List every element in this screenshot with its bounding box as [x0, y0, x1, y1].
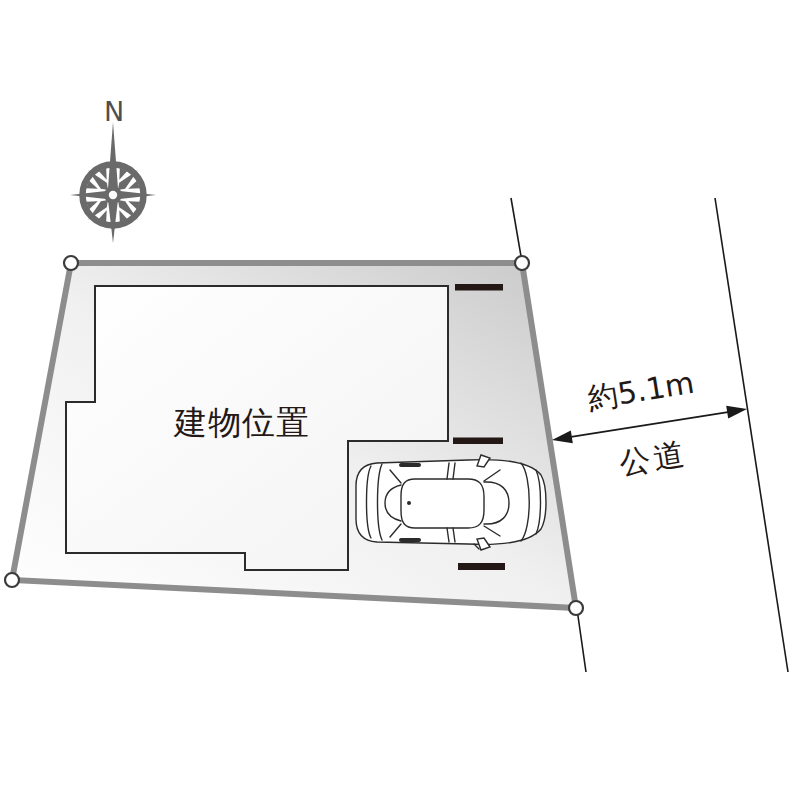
car-door-handle [407, 501, 411, 505]
corner-marker-top-left [64, 256, 78, 270]
corner-marker-bottom-right [569, 601, 583, 615]
road-left-edge-upper [511, 198, 522, 262]
compass-hub-center [109, 191, 117, 199]
setback-dash-bottom [458, 563, 505, 570]
dimension-arrowhead-left [552, 431, 573, 444]
road-width-label: 約5.1m [585, 365, 696, 416]
road-width-dimension [552, 406, 747, 444]
dimension-arrowhead-right [726, 406, 747, 419]
corner-marker-top-right [515, 256, 529, 270]
dimension-arrow-line [560, 410, 739, 438]
road-right-edge [715, 198, 788, 672]
setback-dash-middle [453, 438, 503, 445]
road-name-label: 公道 [617, 435, 690, 481]
setback-dash-top [455, 284, 503, 291]
corner-marker-bottom-left [5, 573, 19, 587]
compass-rose [70, 122, 156, 243]
car-roof [401, 479, 484, 528]
compass-north-label: N [104, 96, 124, 127]
road-left-edge-lower [577, 609, 586, 672]
site-plan-svg: N 建物位置 約5.1m 公道 [0, 0, 800, 800]
site-plan-canvas: N 建物位置 約5.1m 公道 [0, 0, 800, 800]
building-position-label: 建物位置 [173, 403, 310, 442]
car-top-view [356, 455, 546, 550]
